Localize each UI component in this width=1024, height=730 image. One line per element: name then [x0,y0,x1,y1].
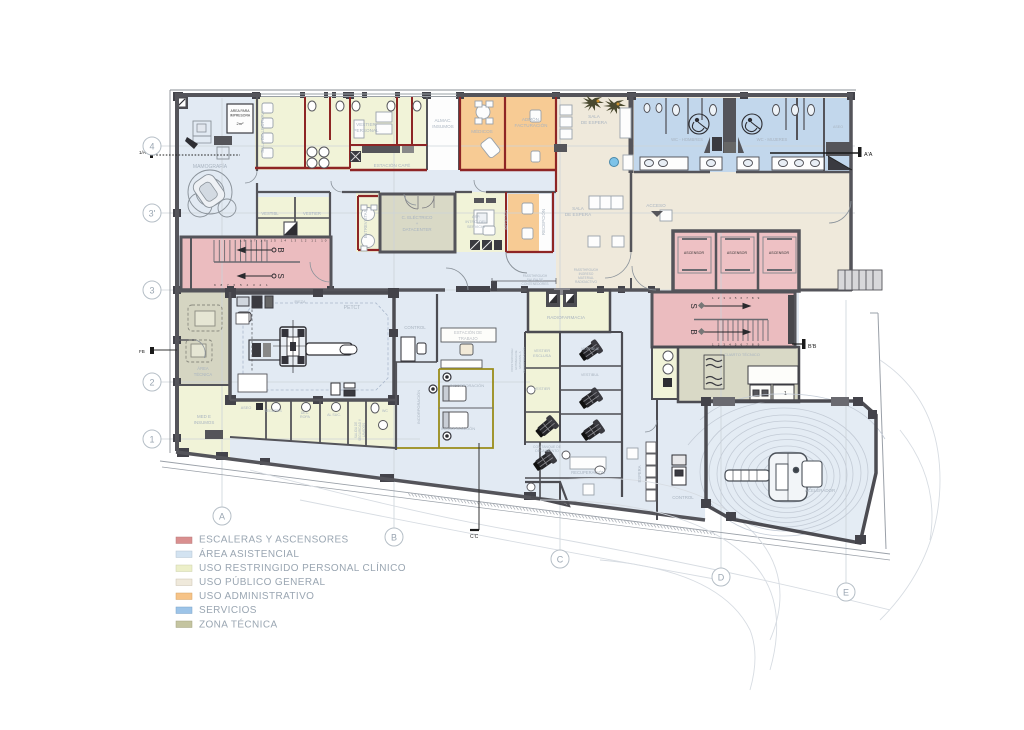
svg-text:VESTIBUL: VESTIBUL [581,347,599,351]
svg-text:VESTIER: VESTIER [356,122,376,127]
svg-text:VESTIER: VESTIER [534,349,551,353]
svg-text:WC: WC [382,409,388,413]
svg-text:D: D [718,573,725,583]
svg-text:ESCALERAS Y ASCENSORES: ESCALERAS Y ASCENSORES [199,535,349,546]
svg-text:ASEO: ASEO [241,406,252,410]
svg-text:9 8 7 6 5 4 3 2 1: 9 8 7 6 5 4 3 2 1 [214,283,270,287]
svg-text:RECUPERACIÓN: RECUPERACIÓN [571,470,605,475]
svg-text:ESPERA: ESPERA [637,465,642,482]
svg-text:VESTIBL: VESTIBL [261,211,279,216]
svg-text:B: B [276,247,285,252]
svg-text:DATACENTER: DATACENTER [402,227,431,232]
svg-text:1 2 3 4 5 6 7 8 9: 1 2 3 4 5 6 7 8 9 [712,296,761,300]
svg-text:+: + [416,221,419,226]
svg-text:INSUMOS: INSUMOS [432,124,453,129]
svg-text:2m²: 2m² [237,121,245,126]
svg-text:WC - HOMBRES: WC - HOMBRES [671,137,703,142]
svg-text:INCORPORACIÓN: INCORPORACIÓN [416,390,421,424]
svg-text:DE ESPERA: DE ESPERA [565,212,592,217]
svg-text:3: 3 [149,286,154,296]
svg-text:A'A: A'A [864,152,873,158]
svg-text:SALA: SALA [572,206,585,211]
svg-text:S: S [689,303,698,308]
svg-text:ASCENSOR: ASCENSOR [769,251,790,255]
svg-text:ÁREA: ÁREA [197,366,209,371]
svg-text:TRABAJO: TRABAJO [458,336,478,341]
svg-text:C. ELÉCTRICO: C. ELÉCTRICO [402,215,433,220]
svg-text:IMPRESORA: IMPRESORA [230,114,251,118]
svg-text:ALMAC.: ALMAC. [434,118,451,123]
svg-text:CONTROL: CONTROL [672,495,694,500]
svg-text:ACCESO: ACCESO [646,203,666,208]
svg-text:ASEO: ASEO [833,125,843,129]
svg-text:CONTENEDORES: CONTENEDORES [522,282,549,286]
svg-text:MAMOGRAFÍA: MAMOGRAFÍA [193,163,228,170]
svg-text:DE ESPERA: DE ESPERA [581,120,608,125]
svg-text:FACTURACIÓN: FACTURACIÓN [515,122,548,128]
svg-text:3': 3' [149,209,156,219]
svg-text:ÁREA ASISTENCIAL: ÁREA ASISTENCIAL [199,547,299,560]
svg-text:ASCENSOR: ASCENSOR [727,251,748,255]
svg-text:S: S [276,273,285,278]
svg-text:C: C [557,555,564,565]
svg-text:USO PÚBLICO GENERAL: USO PÚBLICO GENERAL [199,575,326,588]
svg-text:INCORPORACIÓN: INCORPORACIÓN [521,347,526,373]
svg-text:SEGURES: SEGURES [264,409,282,413]
svg-text:FB: FB [139,349,145,354]
svg-text:PERSONAL: PERSONAL [353,128,378,133]
svg-text:PETCT: PETCT [344,305,360,311]
svg-text:VESTIER: VESTIER [534,387,551,391]
svg-text:ESTACIÓN DE: ESTACIÓN DE [454,330,482,335]
svg-text:SALA DE LECTURA: SALA DE LECTURA [260,110,265,153]
svg-text:CONTROL: CONTROL [404,325,426,330]
svg-text:TÉCNICA: TÉCNICA [194,372,213,377]
svg-text:USO ADMINISTRATIVO: USO ADMINISTRATIVO [199,591,314,602]
svg-text:ROPA: ROPA [300,415,311,419]
svg-text:B'B: B'B [808,344,817,350]
svg-text:ASCENSOR: ASCENSOR [684,251,705,255]
svg-text:ENTREVISTAS: ENTREVISTAS [363,209,368,238]
svg-text:WC - MUJERES: WC - MUJERES [757,137,788,142]
svg-text:B: B [689,329,698,334]
svg-text:ZONA TÉCNICA: ZONA TÉCNICA [199,618,278,631]
svg-text:RADIOFARMACIA: RADIOFARMACIA [547,315,586,320]
svg-text:E: E [843,588,849,598]
svg-text:ADMÓN.: ADMÓN. [522,116,540,122]
svg-text:SERVICIO: SERVICIO [467,225,485,229]
svg-text:MED E: MED E [197,414,211,419]
svg-text:LAVADOS: LAVADOS [362,423,366,438]
svg-text:4: 4 [149,142,154,152]
svg-text:C'C: C'C [470,534,479,540]
svg-text:AREA PARA: AREA PARA [231,109,251,113]
svg-text:VESTIER: VESTIER [303,211,321,216]
svg-text:INTRO. DEL: INTRO. DEL [465,220,486,224]
svg-text:CUARTO TÉCNICO: CUARTO TÉCNICO [724,352,760,357]
svg-text:ACELERADOR: ACELERADOR [805,488,835,493]
svg-text:ESCLUSA: ESCLUSA [533,354,551,358]
svg-text:VESTIBUL: VESTIBUL [581,373,599,377]
svg-text:ASP.: ASP. [472,215,480,219]
svg-text:IMPRESIÓN: IMPRESIÓN [503,210,508,231]
svg-text:SERVICIOS: SERVICIOS [199,605,257,616]
svg-text:B: B [391,533,397,543]
svg-text:AL SUC.: AL SUC. [327,413,341,417]
svg-text:USO RESTRINGIDO PERSONAL CLÍNI: USO RESTRINGIDO PERSONAL CLÍNICO [199,561,406,574]
svg-text:RADIOACTIVO: RADIOACTIVO [575,280,597,284]
svg-text:PIEZA: PIEZA [295,300,306,304]
svg-text:18 17 16 15 14 13 12 11 10: 18 17 16 15 14 13 12 11 10 [240,239,328,243]
svg-text:2: 2 [149,378,154,388]
svg-text:MÉDICOS: MÉDICOS [471,128,492,134]
svg-text:RECEPCIÓN: RECEPCIÓN [541,209,546,235]
svg-text:SALA: SALA [588,114,601,119]
svg-text:ESTACIÓN CAFÉ: ESTACIÓN CAFÉ [374,162,411,168]
svg-text:INCORPORACIÓN: INCORPORACIÓN [450,383,484,388]
svg-text:INCORPORACIÓN: INCORPORACIÓN [441,426,475,431]
svg-text:1: 1 [149,435,154,445]
svg-text:DECAIMIENTO: DECAIMIENTO [535,449,559,453]
svg-text:A: A [219,512,225,522]
svg-text:INSUMOS: INSUMOS [194,420,215,425]
